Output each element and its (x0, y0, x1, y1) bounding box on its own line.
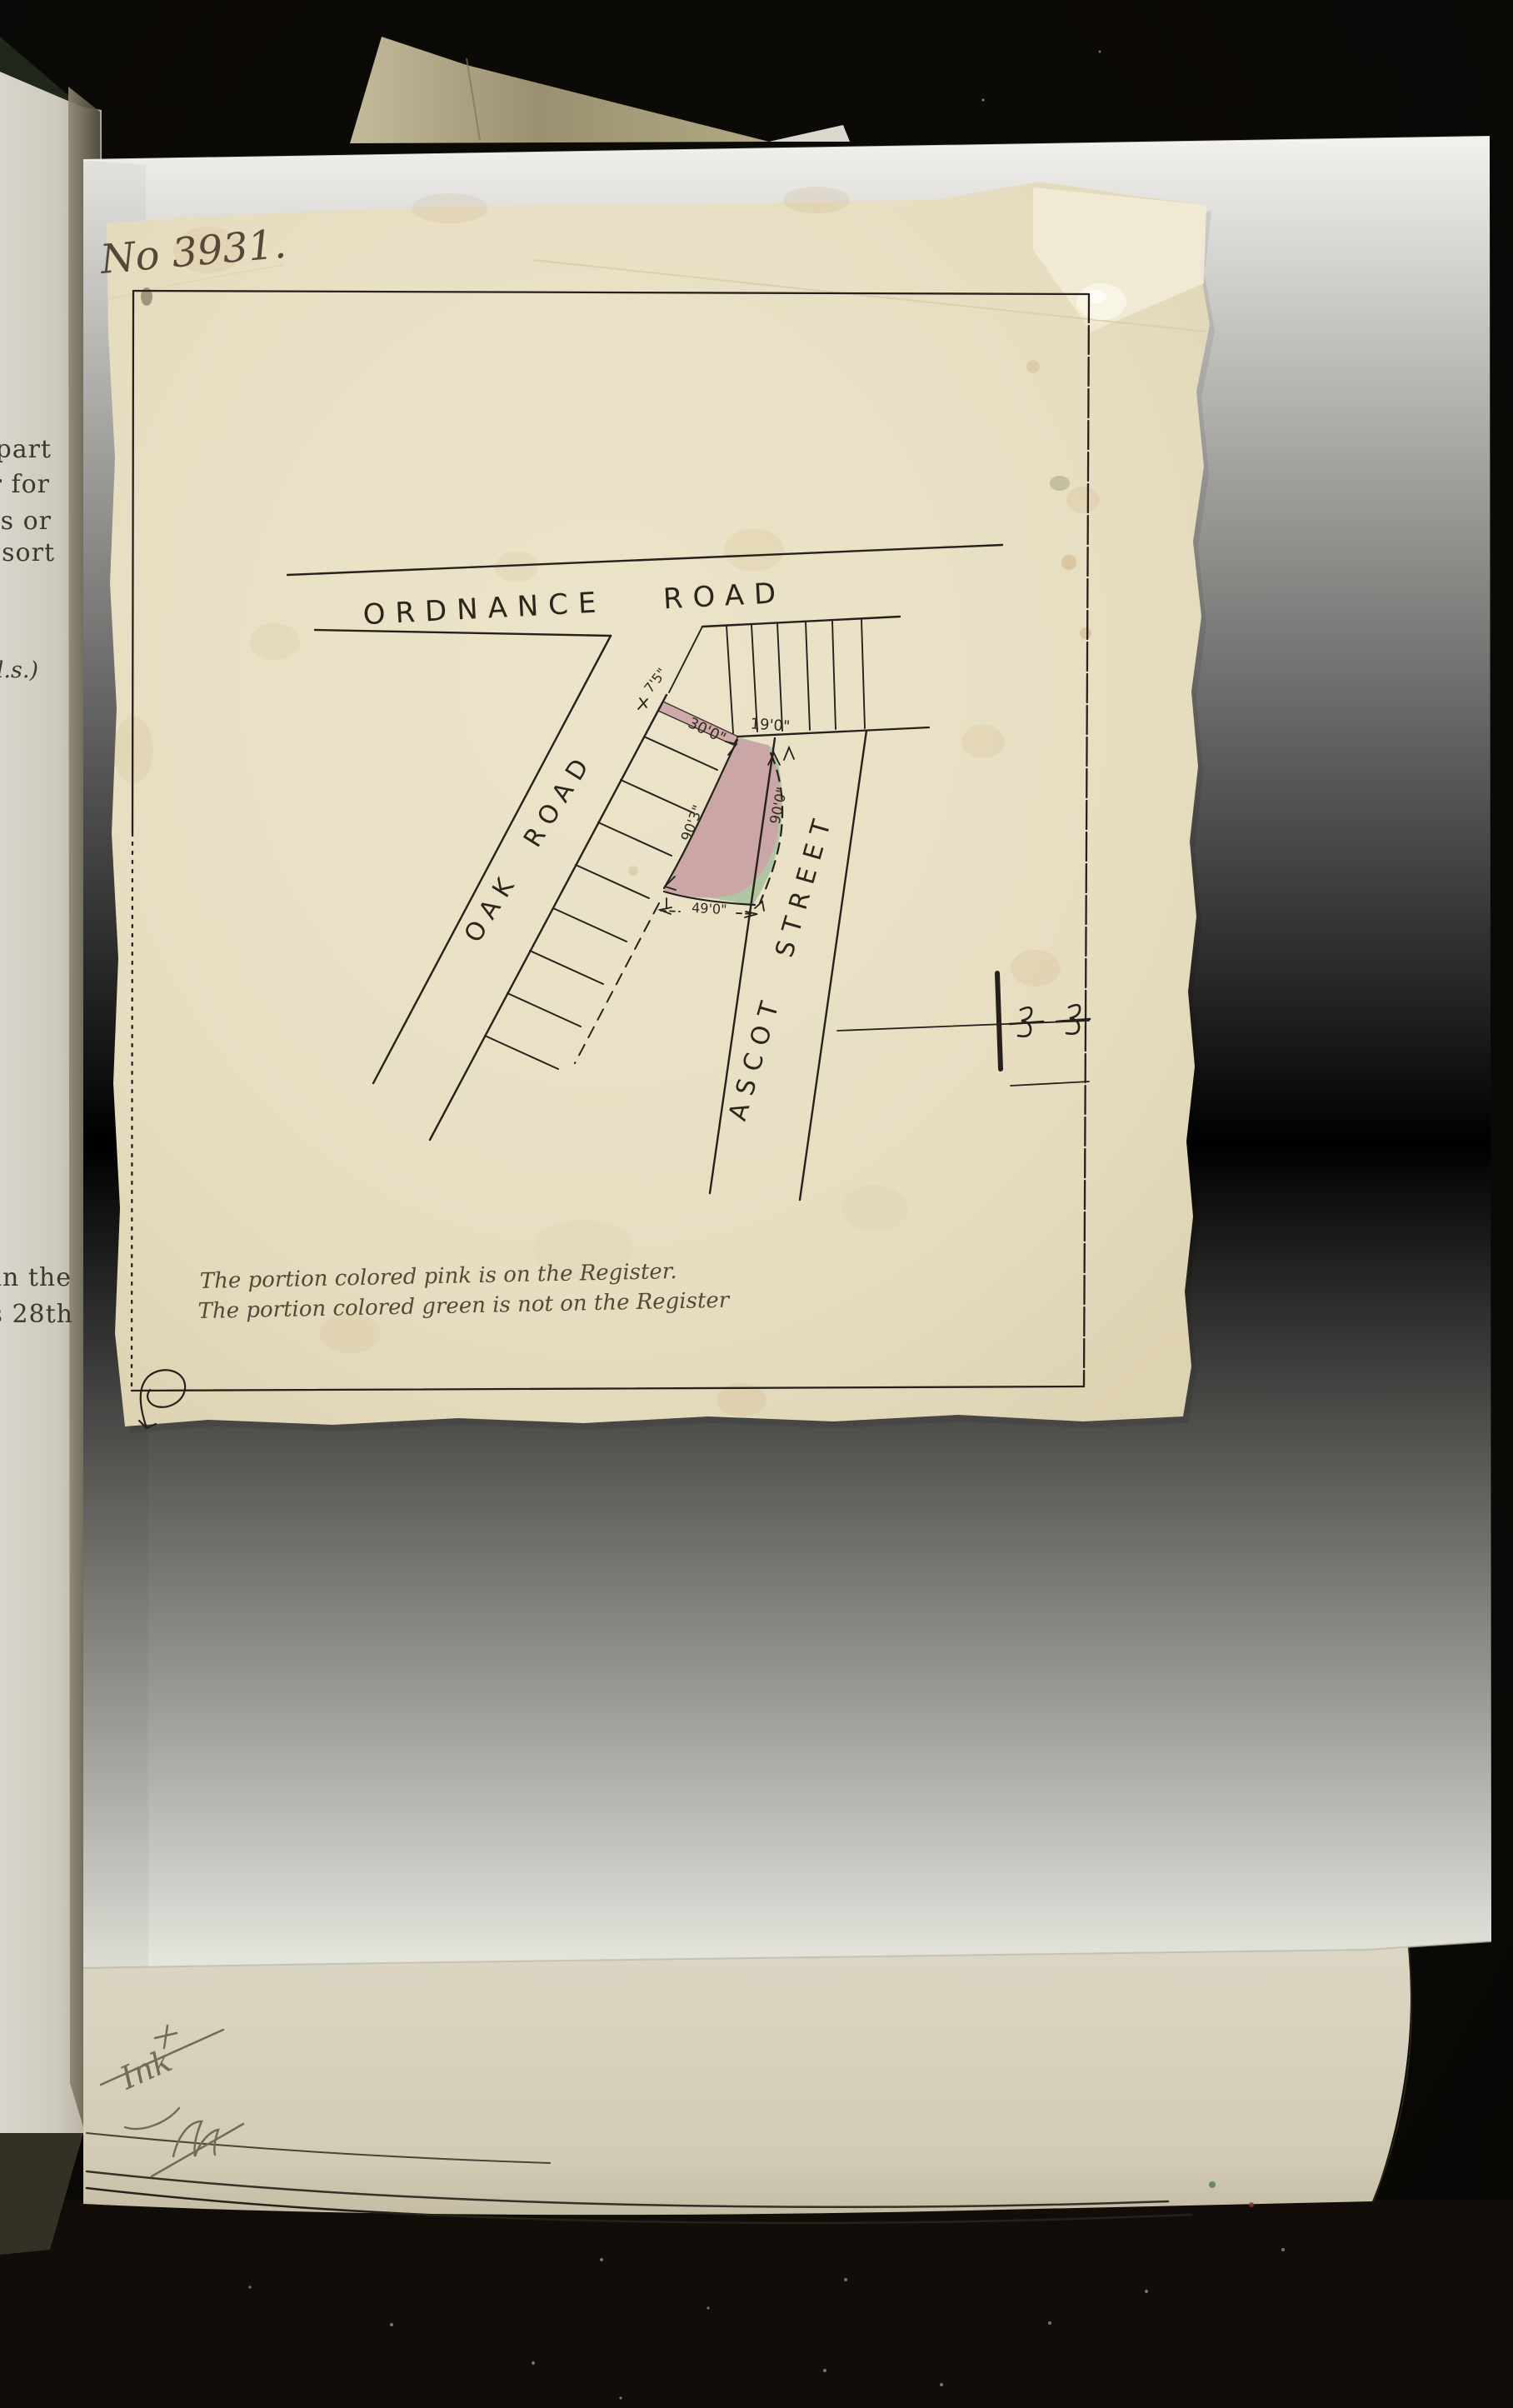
printed-fragment: es or (0, 507, 52, 536)
printed-fragment: his 28th (0, 1300, 73, 1329)
printed-fragment: part (0, 435, 52, 464)
scanned-register-page: part r for es or resort l.s.) in the his… (0, 0, 1513, 2408)
dim-label-bottom: 49'0" (692, 900, 727, 917)
printed-fragment: r for (0, 470, 50, 499)
scan-canvas: part r for es or resort l.s.) in the his… (0, 0, 1513, 2408)
green-smudge (1050, 476, 1070, 491)
linen-plan-sheet (107, 182, 1210, 1426)
survey-tick (997, 973, 1001, 1069)
frame-left-upper (132, 291, 133, 833)
plan-sheet-group: No 3931. (97, 182, 1215, 1433)
bottom-book-page (83, 1938, 1411, 2215)
background-bottom-tint (0, 2200, 1513, 2408)
printed-fragment: in the (0, 1263, 72, 1292)
printed-fragment: l.s.) (0, 657, 38, 683)
red-speck (1249, 2202, 1254, 2207)
printed-fragment: resort (0, 538, 55, 567)
green-speck (1209, 2181, 1216, 2188)
dim-label-street-gap: 19'0" (750, 715, 791, 735)
